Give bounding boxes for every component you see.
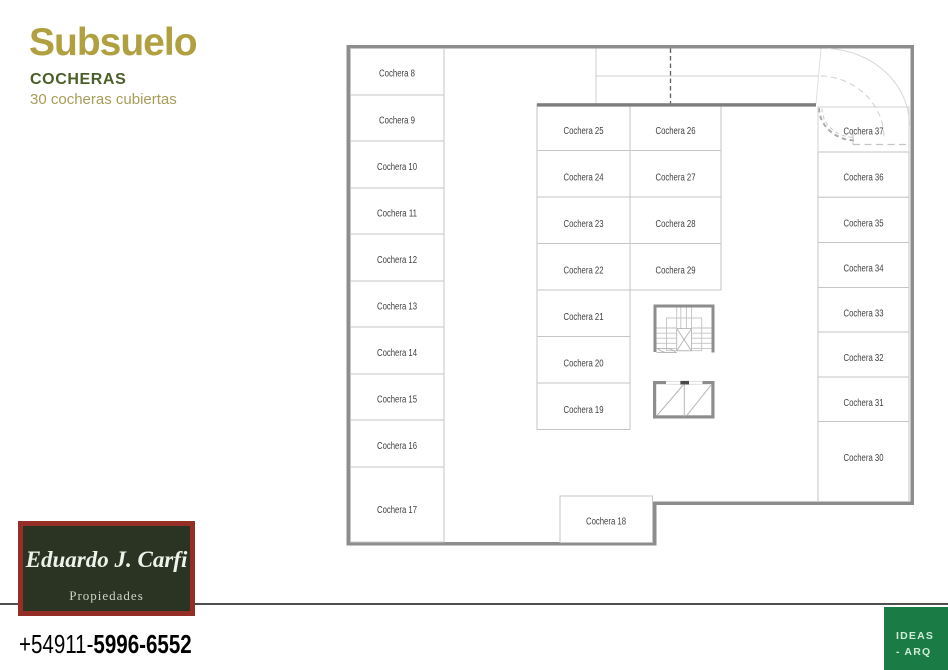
- svg-text:Cochera 8: Cochera 8: [379, 69, 415, 80]
- svg-text:Cochera 29: Cochera 29: [656, 266, 696, 277]
- svg-text:Cochera 33: Cochera 33: [844, 309, 884, 320]
- svg-text:Cochera 31: Cochera 31: [844, 398, 884, 409]
- svg-text:Cochera 23: Cochera 23: [564, 219, 604, 230]
- svg-text:Cochera 13: Cochera 13: [377, 302, 417, 313]
- svg-text:Cochera 15: Cochera 15: [377, 395, 417, 406]
- svg-text:Cochera 21: Cochera 21: [564, 312, 604, 323]
- svg-text:Cochera 28: Cochera 28: [656, 219, 696, 230]
- svg-text:Cochera 36: Cochera 36: [844, 173, 884, 184]
- svg-text:Cochera 17: Cochera 17: [377, 505, 417, 516]
- svg-text:Cochera 32: Cochera 32: [844, 353, 884, 364]
- svg-text:Cochera 14: Cochera 14: [377, 348, 417, 359]
- svg-text:Cochera 18: Cochera 18: [586, 517, 626, 528]
- svg-text:Cochera 12: Cochera 12: [377, 255, 417, 266]
- svg-text:Cochera 25: Cochera 25: [564, 126, 604, 137]
- svg-text:Cochera 34: Cochera 34: [844, 264, 884, 275]
- svg-text:Cochera 22: Cochera 22: [564, 266, 604, 277]
- svg-text:Cochera 16: Cochera 16: [377, 441, 417, 452]
- svg-text:Cochera 26: Cochera 26: [656, 126, 696, 137]
- svg-text:Cochera 20: Cochera 20: [564, 359, 604, 370]
- svg-text:Cochera 30: Cochera 30: [844, 453, 884, 464]
- svg-text:Cochera 35: Cochera 35: [844, 219, 884, 230]
- svg-text:Cochera 9: Cochera 9: [379, 116, 415, 127]
- svg-text:Cochera 24: Cochera 24: [564, 173, 604, 184]
- svg-text:Cochera 19: Cochera 19: [564, 405, 604, 416]
- svg-text:Cochera 11: Cochera 11: [377, 209, 417, 220]
- svg-text:Cochera 37: Cochera 37: [844, 127, 884, 138]
- svg-text:Cochera 10: Cochera 10: [377, 162, 417, 173]
- svg-text:Cochera 27: Cochera 27: [656, 173, 696, 184]
